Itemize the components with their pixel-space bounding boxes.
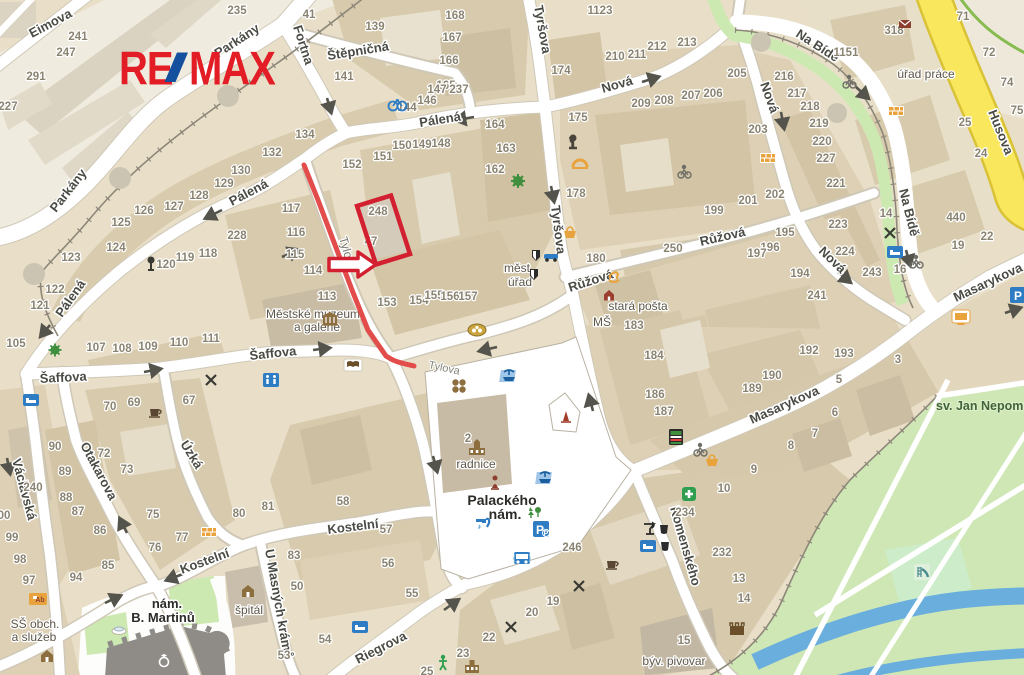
svg-text:178: 178	[566, 188, 586, 200]
svg-text:190: 190	[762, 370, 781, 382]
svg-text:107: 107	[86, 342, 105, 354]
svg-text:87: 87	[72, 506, 85, 518]
svg-text:108: 108	[112, 343, 132, 355]
svg-text:208: 208	[654, 95, 674, 107]
svg-text:109: 109	[138, 341, 157, 353]
svg-text:149: 149	[412, 139, 431, 151]
svg-text:94: 94	[70, 572, 83, 584]
svg-text:Šaffova: Šaffova	[39, 369, 87, 386]
svg-text:232: 232	[712, 547, 731, 559]
svg-text:151: 151	[373, 151, 393, 163]
svg-text:201: 201	[738, 195, 758, 207]
svg-text:50: 50	[291, 581, 304, 593]
svg-text:248: 248	[368, 206, 388, 218]
svg-text:10: 10	[718, 483, 731, 495]
svg-text:121: 121	[30, 300, 50, 312]
svg-text:194: 194	[790, 268, 810, 280]
svg-text:81: 81	[262, 501, 275, 513]
svg-text:24: 24	[975, 148, 988, 160]
svg-text:radnice: radnice	[456, 457, 496, 471]
svg-text:58: 58	[337, 496, 350, 508]
svg-text:19: 19	[952, 240, 965, 252]
svg-text:7: 7	[812, 428, 818, 440]
svg-text:76: 76	[149, 542, 162, 554]
svg-text:175: 175	[568, 112, 588, 124]
svg-text:134: 134	[295, 129, 315, 141]
svg-text:146: 146	[417, 95, 436, 107]
svg-text:210: 210	[605, 51, 624, 63]
svg-text:227: 227	[816, 153, 835, 165]
svg-text:19: 19	[547, 596, 560, 608]
svg-text:MAX: MAX	[189, 42, 276, 95]
svg-text:85: 85	[102, 560, 115, 572]
svg-text:246: 246	[562, 542, 581, 554]
svg-text:RE: RE	[119, 42, 173, 95]
svg-text:55: 55	[406, 588, 419, 600]
svg-text:MŠ: MŠ	[593, 314, 611, 329]
svg-text:220: 220	[812, 136, 831, 148]
svg-text:152: 152	[342, 159, 361, 171]
svg-text:83: 83	[288, 550, 301, 562]
svg-text:206: 206	[703, 88, 722, 100]
svg-text:a služeb: a služeb	[12, 630, 57, 644]
svg-text:132: 132	[262, 147, 281, 159]
svg-text:6: 6	[832, 407, 838, 419]
svg-text:41: 41	[303, 9, 316, 21]
svg-text:174: 174	[551, 65, 571, 77]
svg-text:126: 126	[134, 205, 153, 217]
svg-text:88: 88	[60, 492, 73, 504]
svg-text:150: 150	[392, 140, 411, 152]
svg-text:Ab: Ab	[35, 597, 44, 604]
svg-text:57: 57	[380, 524, 393, 536]
svg-text:211: 211	[628, 49, 647, 61]
svg-text:86: 86	[94, 525, 107, 537]
svg-text:14: 14	[738, 593, 751, 605]
svg-text:8: 8	[788, 440, 795, 452]
svg-text:157: 157	[458, 291, 477, 303]
svg-text:15: 15	[678, 635, 691, 647]
svg-text:P: P	[1014, 289, 1022, 303]
svg-text:291: 291	[26, 71, 46, 83]
svg-text:9: 9	[751, 464, 757, 476]
svg-text:B. Martinů: B. Martinů	[131, 610, 195, 625]
svg-text:235: 235	[227, 5, 247, 17]
svg-text:54: 54	[319, 634, 332, 646]
svg-text:168: 168	[445, 10, 465, 22]
svg-text:sv. Jan Nepomuc: sv. Jan Nepomuc	[936, 399, 1024, 413]
svg-text:162: 162	[485, 164, 504, 176]
svg-text:74: 74	[1001, 77, 1014, 89]
svg-text:180: 180	[586, 253, 605, 265]
svg-text:193: 193	[834, 348, 853, 360]
svg-text:71: 71	[957, 11, 970, 23]
svg-text:SŠ obch.: SŠ obch.	[11, 616, 60, 631]
svg-text:72: 72	[98, 448, 111, 460]
svg-text:125: 125	[111, 217, 131, 229]
svg-text:192: 192	[799, 345, 818, 357]
svg-text:měst: měst	[504, 261, 531, 275]
svg-text:241: 241	[68, 31, 88, 43]
svg-text:73: 73	[121, 464, 134, 476]
svg-text:úřad: úřad	[508, 275, 532, 289]
svg-text:118: 118	[199, 248, 218, 260]
svg-text:228: 228	[227, 230, 247, 242]
svg-text:stará pošta: stará pošta	[608, 299, 668, 313]
svg-text:124: 124	[106, 242, 126, 254]
svg-text:53: 53	[278, 650, 291, 662]
svg-text:80: 80	[233, 508, 246, 520]
svg-text:úřad práce: úřad práce	[897, 67, 955, 81]
svg-text:250: 250	[663, 243, 682, 255]
svg-text:127: 127	[164, 201, 183, 213]
svg-text:221: 221	[826, 178, 846, 190]
svg-text:187: 187	[654, 406, 673, 418]
svg-text:75: 75	[1011, 105, 1024, 117]
svg-text:72: 72	[983, 47, 996, 59]
svg-text:25: 25	[959, 117, 972, 129]
svg-text:67: 67	[183, 395, 196, 407]
svg-text:111: 111	[202, 333, 221, 345]
svg-text:97: 97	[23, 575, 36, 587]
svg-text:237: 237	[449, 84, 468, 96]
svg-text:99: 99	[6, 532, 19, 544]
svg-text:224: 224	[835, 246, 855, 258]
svg-text:77: 77	[176, 532, 189, 544]
svg-text:105: 105	[6, 338, 26, 350]
svg-text:13: 13	[733, 573, 746, 585]
svg-text:219: 219	[809, 118, 828, 130]
svg-text:216: 216	[774, 71, 793, 83]
svg-text:153: 153	[377, 297, 396, 309]
svg-text:14: 14	[880, 208, 893, 220]
svg-text:205: 205	[727, 68, 747, 80]
svg-text:123: 123	[61, 252, 80, 264]
svg-text:129: 129	[214, 178, 233, 190]
svg-text:113: 113	[318, 291, 337, 303]
svg-text:122: 122	[45, 284, 64, 296]
svg-text:166: 166	[439, 55, 458, 67]
svg-text:89: 89	[59, 466, 72, 478]
svg-text:70: 70	[104, 401, 117, 413]
svg-text:209: 209	[631, 98, 650, 110]
svg-text:148: 148	[431, 138, 451, 150]
svg-text:75: 75	[147, 509, 160, 521]
svg-text:213: 213	[677, 37, 696, 49]
svg-text:223: 223	[828, 219, 847, 231]
svg-text:164: 164	[485, 119, 505, 131]
svg-text:139: 139	[365, 21, 384, 33]
svg-text:23: 23	[457, 648, 470, 660]
svg-text:býv. pivovar: býv. pivovar	[642, 654, 705, 668]
svg-text:197: 197	[747, 248, 766, 260]
svg-text:186: 186	[645, 389, 664, 401]
svg-text:špitál: špitál	[235, 603, 263, 617]
svg-text:183: 183	[624, 320, 643, 332]
svg-text:227: 227	[0, 101, 18, 113]
svg-text:1123: 1123	[588, 5, 613, 17]
svg-text:114: 114	[304, 265, 323, 277]
svg-text:234: 234	[675, 507, 695, 519]
svg-text:120: 120	[156, 259, 175, 271]
svg-text:203: 203	[748, 124, 767, 136]
svg-text:98: 98	[14, 554, 27, 566]
svg-text:00: 00	[0, 510, 10, 522]
svg-text:199: 199	[704, 205, 723, 217]
svg-text:nám.: nám.	[489, 506, 522, 522]
svg-text:217: 217	[787, 88, 806, 100]
svg-text:240: 240	[23, 482, 42, 494]
svg-text:P: P	[544, 531, 549, 538]
svg-text:119: 119	[176, 252, 195, 264]
svg-text:110: 110	[170, 337, 189, 349]
svg-text:212: 212	[647, 41, 666, 53]
svg-text:440: 440	[946, 212, 965, 224]
svg-text:56: 56	[382, 558, 395, 570]
svg-text:25: 25	[421, 666, 434, 675]
svg-text:141: 141	[334, 71, 354, 83]
svg-text:130: 130	[231, 165, 250, 177]
svg-text:90: 90	[49, 441, 62, 453]
svg-text:115: 115	[286, 249, 305, 261]
svg-text:189: 189	[742, 383, 761, 395]
svg-text:nám.: nám.	[152, 596, 182, 611]
svg-text:241: 241	[807, 290, 827, 302]
svg-text:16: 16	[894, 264, 907, 276]
svg-text:1151: 1151	[834, 47, 860, 59]
svg-text:202: 202	[765, 189, 784, 201]
svg-text:218: 218	[800, 101, 820, 113]
svg-text:117: 117	[282, 203, 301, 215]
svg-text:22: 22	[483, 632, 496, 644]
svg-text:Městské muzeum: Městské muzeum	[266, 307, 360, 321]
svg-text:184: 184	[644, 350, 664, 362]
svg-text:20: 20	[526, 607, 539, 619]
svg-text:163: 163	[496, 143, 515, 155]
svg-text:247: 247	[56, 47, 75, 59]
svg-text:116: 116	[287, 227, 306, 239]
svg-text:128: 128	[189, 190, 209, 202]
svg-text:3: 3	[895, 354, 901, 366]
svg-text:243: 243	[862, 267, 881, 279]
svg-text:156: 156	[440, 291, 459, 303]
svg-text:22: 22	[981, 231, 994, 243]
svg-text:195: 195	[775, 227, 795, 239]
svg-text:2: 2	[465, 433, 471, 445]
svg-text:167: 167	[442, 32, 461, 44]
svg-text:5: 5	[836, 374, 843, 386]
svg-text:69: 69	[128, 397, 141, 409]
svg-text:207: 207	[681, 90, 700, 102]
